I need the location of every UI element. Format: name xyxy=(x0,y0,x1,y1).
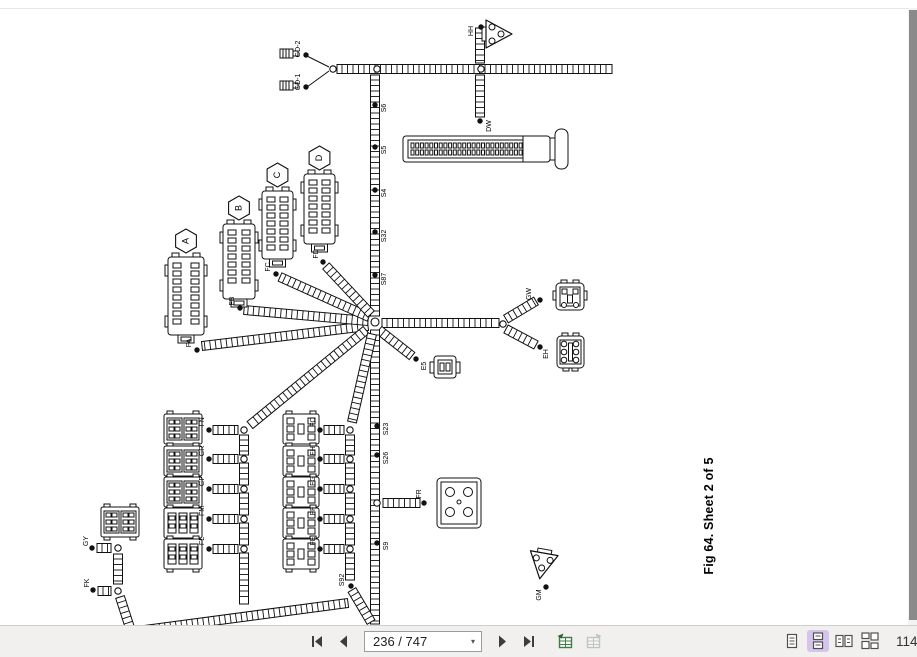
wire-label: S9 xyxy=(383,542,390,551)
connector-hh xyxy=(482,20,512,48)
splice-dot xyxy=(90,587,95,592)
next-page-icon xyxy=(494,633,510,649)
splice-dot xyxy=(348,583,353,588)
svg-text:D: D xyxy=(314,154,324,161)
splice-dot xyxy=(206,456,211,461)
connector-gw xyxy=(553,280,587,310)
relay-fo xyxy=(283,411,319,447)
wiring-diagram: ABCDHHDWS6S5S4S32S87S23S26S9S92FRE5GWEHG… xyxy=(0,0,917,626)
connector-d: D xyxy=(301,146,338,252)
harness-segment xyxy=(382,319,499,328)
splice-dot xyxy=(317,546,322,551)
vertical-scrollbar[interactable] xyxy=(908,8,917,625)
wire-label: DW xyxy=(486,120,493,132)
junction-node xyxy=(374,500,380,506)
wire-label: GD-2 xyxy=(295,41,302,58)
harness-segment xyxy=(324,426,344,435)
harness-segment xyxy=(213,455,238,464)
harness-segment xyxy=(324,545,344,554)
junction-node xyxy=(241,456,247,462)
harness-segment xyxy=(346,493,355,515)
facing-pages-mode-button[interactable] xyxy=(833,630,855,652)
junction-node xyxy=(241,546,247,552)
wire-label: FE xyxy=(310,536,317,545)
connector-b: B xyxy=(220,196,258,307)
harness-segment xyxy=(240,463,249,485)
splice-dot xyxy=(374,452,379,457)
harness-segment xyxy=(114,554,123,584)
splice-dot xyxy=(372,229,377,234)
splice-dot xyxy=(206,546,211,551)
splice-dot xyxy=(372,187,377,192)
harness-segment xyxy=(476,75,485,117)
table-arrow-left-icon xyxy=(557,633,574,650)
splice-dot xyxy=(303,84,308,89)
harness-segment xyxy=(213,515,238,524)
document-page: ABCDHHDWS6S5S4S32S87S23S26S9S92FRE5GWEHG… xyxy=(0,0,908,625)
table-arrow-right-icon xyxy=(585,633,602,650)
wire-label: EH xyxy=(543,349,550,359)
next-page-button[interactable] xyxy=(491,630,513,652)
harness-segment xyxy=(116,596,135,626)
figure-caption: Fig 64. Sheet 2 of 5 xyxy=(702,456,716,576)
wire-label: S32 xyxy=(381,230,388,243)
wire-label: S26 xyxy=(383,452,390,465)
junction-node xyxy=(347,516,353,522)
last-page-button[interactable] xyxy=(518,630,540,652)
junction-node xyxy=(330,66,336,72)
harness-segment xyxy=(240,493,249,515)
wire-label: S87 xyxy=(381,273,388,286)
wire-label: GP xyxy=(199,476,206,486)
first-page-icon xyxy=(309,633,325,649)
junction-node xyxy=(374,66,380,72)
wire-label: GD-1 xyxy=(295,74,302,91)
splice-dot xyxy=(317,516,322,521)
harness-segment xyxy=(324,515,344,524)
splice-dot xyxy=(273,271,278,276)
splice-dot xyxy=(372,272,377,277)
splice-dot xyxy=(317,456,322,461)
single-page-icon xyxy=(783,632,801,650)
wire-label: FL xyxy=(199,537,206,545)
harness-segment xyxy=(213,426,238,435)
wire-label: FA xyxy=(186,338,193,347)
harness-segment xyxy=(346,553,355,580)
splice-dot xyxy=(374,423,379,428)
view-history-buttons xyxy=(554,630,604,652)
junction-node xyxy=(347,546,353,552)
harness-segment xyxy=(98,587,111,596)
wire-label: GR xyxy=(199,446,206,457)
harness-segment xyxy=(371,75,380,316)
harness-segment xyxy=(346,463,355,485)
junction-node xyxy=(371,318,379,326)
wire-label: FH xyxy=(310,446,317,455)
splice-dot xyxy=(543,584,548,589)
harness-segment xyxy=(371,330,380,624)
page-number-combobox[interactable]: 236 / 747 ▾ xyxy=(364,631,482,652)
single-page-mode-button[interactable] xyxy=(781,630,803,652)
wire-label: GY xyxy=(83,536,90,546)
harness-segment xyxy=(346,523,355,545)
page-display-modes: 114 xyxy=(781,630,917,652)
junction-node xyxy=(500,321,506,327)
wire-label: FO xyxy=(310,417,317,427)
splice-dot xyxy=(206,516,211,521)
pdf-viewer-window: ABCDHHDWS6S5S4S32S87S23S26S9S92FRE5GWEHG… xyxy=(0,0,917,657)
page-top-edge xyxy=(0,8,908,9)
splice-dot xyxy=(537,344,542,349)
previous-view-button[interactable] xyxy=(554,630,576,652)
splice-dot xyxy=(303,52,308,57)
page-number-value: 236 / 747 xyxy=(373,634,427,649)
harness-segment xyxy=(240,435,249,455)
relay-fn xyxy=(164,411,202,447)
previous-page-button[interactable] xyxy=(333,630,355,652)
junction-node xyxy=(115,545,121,551)
wire-label: FR xyxy=(416,489,423,498)
connector-eh xyxy=(557,333,584,371)
junction-node xyxy=(241,516,247,522)
chevron-down-icon: ▾ xyxy=(471,637,475,646)
junction-node xyxy=(115,588,121,594)
junction-node xyxy=(347,427,353,433)
splice-dot xyxy=(477,118,482,123)
lead-line xyxy=(307,71,329,87)
harness-segment xyxy=(504,325,538,349)
splice-dot xyxy=(537,297,542,302)
wire-label: FB xyxy=(229,296,236,305)
harness-segment xyxy=(383,499,420,508)
wire-label: FM xyxy=(199,506,206,516)
continuous-page-icon xyxy=(809,632,827,650)
splice-dot xyxy=(317,427,322,432)
splice-dot xyxy=(206,486,211,491)
wire-label: S23 xyxy=(383,423,390,436)
lead-line xyxy=(307,56,329,67)
wire-label: HH xyxy=(468,26,475,36)
harness-segment xyxy=(504,297,539,323)
wire-label: GM xyxy=(536,589,543,600)
junction-node xyxy=(347,486,353,492)
wire-label: FN xyxy=(199,417,206,426)
splice-dot xyxy=(237,305,242,310)
splice-dot xyxy=(194,347,199,352)
continuous-facing-icon xyxy=(861,632,879,650)
splice-dot xyxy=(317,486,322,491)
junction-node xyxy=(241,427,247,433)
junction-node xyxy=(241,486,247,492)
junction-node xyxy=(347,456,353,462)
wire-label: FC xyxy=(265,262,272,271)
splice-dot xyxy=(206,427,211,432)
previous-page-icon xyxy=(336,633,352,649)
splice-dot xyxy=(478,24,483,29)
wire-label: S4 xyxy=(381,189,388,198)
continuous-facing-mode-button[interactable] xyxy=(859,630,881,652)
zoom-level[interactable]: 114 xyxy=(896,634,917,649)
wire-label: FG xyxy=(310,476,317,486)
first-page-button[interactable] xyxy=(306,630,328,652)
connector-a: A xyxy=(165,229,207,343)
bottom-toolbar: 236 / 747 ▾ xyxy=(0,625,917,657)
connector-e5 xyxy=(430,356,460,378)
splice-dot xyxy=(421,500,426,505)
relay-gy xyxy=(101,504,139,540)
last-page-icon xyxy=(521,633,537,649)
scrollbar-thumb[interactable] xyxy=(909,10,917,620)
harness-segment xyxy=(121,599,348,626)
splice-dot xyxy=(413,356,418,361)
wire-label: FK xyxy=(84,578,91,587)
connector-gm xyxy=(526,547,559,581)
wire-label: GW xyxy=(526,288,533,300)
splice-dot xyxy=(372,144,377,149)
wire-label: E5 xyxy=(421,362,428,371)
harness-segment xyxy=(213,545,238,554)
continuous-mode-button[interactable] xyxy=(807,630,829,652)
wire-label: S92 xyxy=(339,574,346,587)
splice-dot xyxy=(372,102,377,107)
relay-fl xyxy=(164,536,202,572)
harness-segment xyxy=(324,485,344,494)
connector-c: C xyxy=(259,163,296,267)
next-view-button[interactable] xyxy=(582,630,604,652)
wire-label: FF xyxy=(310,507,317,516)
harness-segment xyxy=(240,523,249,545)
facing-pages-icon xyxy=(835,632,853,650)
connector-dw xyxy=(403,129,568,169)
splice-dot xyxy=(320,259,325,264)
svg-text:B: B xyxy=(233,205,243,211)
splice-dot xyxy=(374,540,379,545)
harness-segment xyxy=(376,326,415,359)
harness-segment xyxy=(97,544,111,553)
wire-label: S5 xyxy=(381,146,388,155)
wire-label: FD xyxy=(313,249,320,258)
svg-text:C: C xyxy=(272,171,282,178)
harness-segment xyxy=(240,553,249,604)
page-navigation: 236 / 747 ▾ xyxy=(306,630,604,652)
junction-node xyxy=(478,66,484,72)
harness-segment xyxy=(346,435,355,455)
splice-dot xyxy=(89,545,94,550)
svg-text:A: A xyxy=(180,238,190,244)
connector-fr xyxy=(437,478,481,528)
harness-segment xyxy=(324,455,344,464)
wire-label: S6 xyxy=(381,104,388,113)
harness-segment xyxy=(213,485,238,494)
